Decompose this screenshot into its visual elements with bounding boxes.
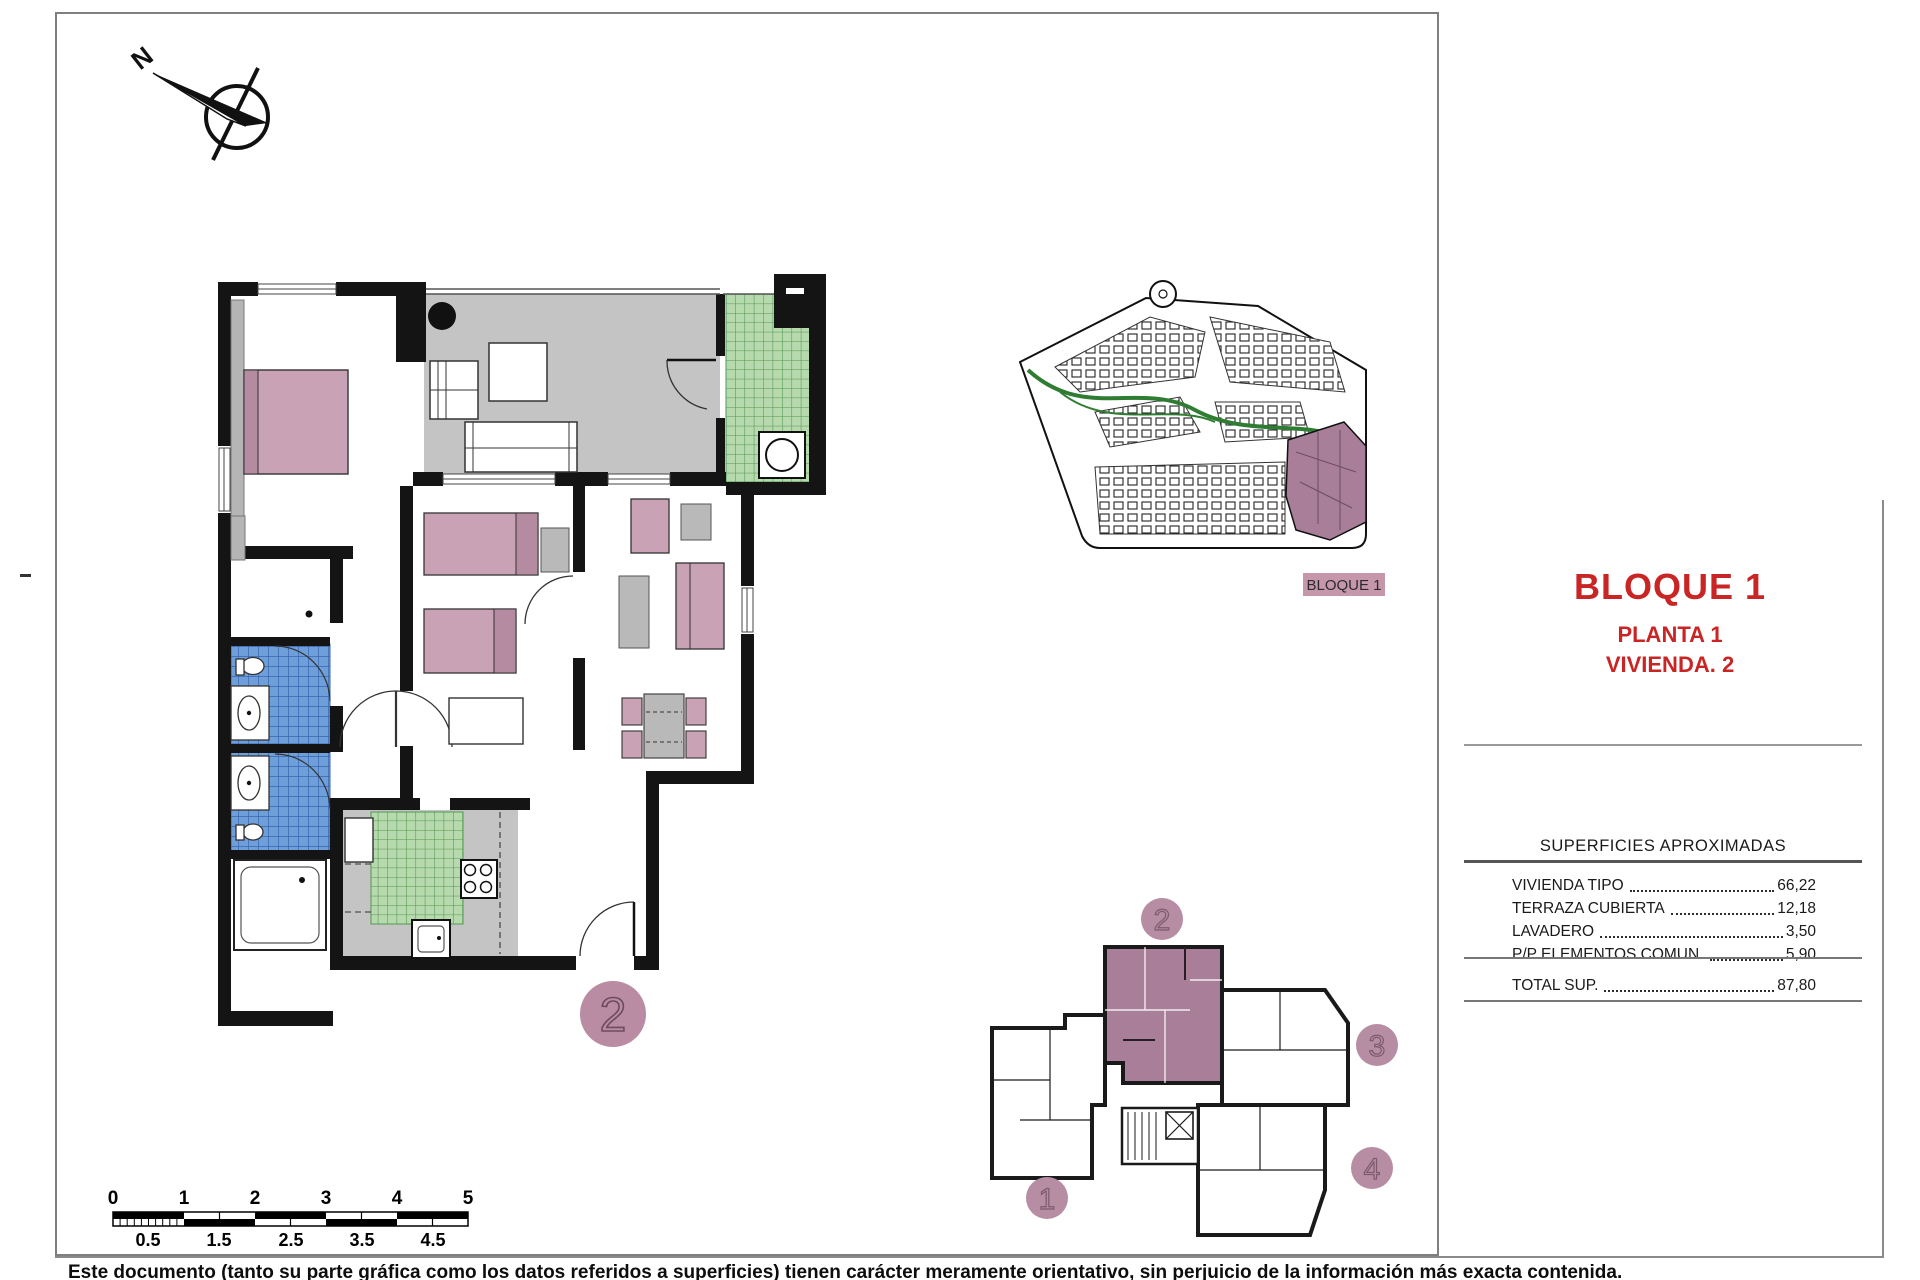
washing-machine-drum xyxy=(766,439,798,471)
unit-badge-number: 2 xyxy=(600,989,627,1042)
block-title: BLOQUE 1 xyxy=(1470,566,1870,608)
salon-glazing xyxy=(426,289,774,294)
surfaces-mid-rule xyxy=(1464,957,1862,959)
row-value: 5,90 xyxy=(1786,946,1816,964)
leader-dots xyxy=(1630,890,1775,892)
keyplan-unit2-highlight xyxy=(1105,947,1222,1083)
total-value: 87,80 xyxy=(1777,977,1816,995)
site-roundabout xyxy=(1150,281,1176,307)
title-panel-right-border xyxy=(1882,500,1884,1258)
living-furniture xyxy=(619,499,724,649)
kitchen-floor xyxy=(371,812,463,924)
dining-set xyxy=(622,694,706,758)
footer-rule xyxy=(55,1256,1884,1258)
footer-disclaimer: Este documento (tanto su parte gráfica c… xyxy=(68,1262,1868,1280)
site-highlight-bloque1 xyxy=(1286,422,1366,540)
panel-divider xyxy=(1464,744,1862,746)
keyplan-number-4: 4 xyxy=(1364,1153,1381,1186)
bathtub xyxy=(234,860,326,950)
margin-tick xyxy=(20,574,31,577)
scale-minor-4: 4.5 xyxy=(420,1230,445,1250)
table-row: VIVIENDA TIPO 66,22 xyxy=(1512,872,1816,895)
compass-needle-light xyxy=(153,73,246,126)
hall-doors xyxy=(340,691,452,747)
column xyxy=(428,302,456,330)
scale-bar-segments xyxy=(113,1212,468,1226)
title-block: BLOQUE 1 PLANTA 1 VIVIENDA. 2 xyxy=(1470,566,1870,678)
apartment-floor-plan: 2 xyxy=(218,266,826,1048)
site-plan: BLOQUE 1 xyxy=(1000,272,1400,602)
leader-dots xyxy=(1604,990,1774,992)
table-row: LAVADERO 3,50 xyxy=(1512,918,1816,941)
site-label-text: BLOQUE 1 xyxy=(1306,577,1381,594)
scale-major-2: 2 xyxy=(250,1188,261,1209)
utility-drain xyxy=(306,611,313,618)
keyplan-number-3: 3 xyxy=(1369,1030,1386,1063)
row-value: 12,18 xyxy=(1777,900,1816,918)
scale-minor-0: 0.5 xyxy=(135,1230,160,1250)
surfaces-total: TOTAL SUP. 87,80 xyxy=(1512,972,1816,995)
surfaces-bottom-rule xyxy=(1464,1000,1862,1002)
scale-major-5: 5 xyxy=(463,1188,474,1209)
bedroom2-furniture xyxy=(424,513,569,744)
master-bench xyxy=(231,516,245,560)
scale-minor-1: 1.5 xyxy=(206,1230,231,1250)
keyplan-number-1: 1 xyxy=(1039,1183,1056,1216)
keyplan-number-2: 2 xyxy=(1154,904,1171,937)
north-label: N xyxy=(125,45,158,76)
scale-minor-2: 2.5 xyxy=(278,1230,303,1250)
entry-door-arc xyxy=(580,902,634,956)
row-label: LAVADERO xyxy=(1512,923,1594,941)
key-plan: 1 2 3 4 xyxy=(980,890,1420,1280)
north-compass: N xyxy=(100,45,320,195)
master-wardrobe xyxy=(231,300,244,516)
keyplan-unit3 xyxy=(1222,990,1348,1105)
surfaces-table: VIVIENDA TIPO 66,22 TERRAZA CUBIERTA 12,… xyxy=(1512,872,1816,964)
keyplan-unit1 xyxy=(992,1015,1105,1178)
surfaces-heading-rule xyxy=(1464,860,1862,863)
scale-major-3: 3 xyxy=(321,1188,332,1209)
floor-title: PLANTA 1 xyxy=(1470,622,1870,648)
scale-major-0: 0 xyxy=(108,1188,119,1209)
row-label: P/P ELEMENTOS COMUN. xyxy=(1512,946,1704,964)
total-label: TOTAL SUP. xyxy=(1512,977,1598,995)
leader-dots xyxy=(1600,936,1783,938)
row-value: 3,50 xyxy=(1786,923,1816,941)
plan-sheet: N xyxy=(0,0,1920,1280)
row-value: 66,22 xyxy=(1777,877,1816,895)
scale-major-4: 4 xyxy=(392,1188,403,1209)
scale-minor-3: 3.5 xyxy=(349,1230,374,1250)
table-row: TERRAZA CUBIERTA 12,18 xyxy=(1512,895,1816,918)
surfaces-heading: SUPERFICIES APROXIMADAS xyxy=(1464,837,1862,856)
scale-major-1: 1 xyxy=(179,1188,190,1209)
table-row: P/P ELEMENTOS COMUN. 5,90 xyxy=(1512,941,1816,964)
leader-dots xyxy=(1671,913,1774,915)
scale-bar: 0 1 2 3 4 5 xyxy=(95,1186,485,1250)
row-label: TERRAZA CUBIERTA xyxy=(1512,900,1665,918)
unit-title: VIVIENDA. 2 xyxy=(1470,652,1870,678)
master-bed-headboard xyxy=(244,370,258,474)
row-label: VIVIENDA TIPO xyxy=(1512,877,1624,895)
master-bed xyxy=(244,370,348,474)
leader-dots xyxy=(1710,959,1783,961)
bedroom2-door-arc xyxy=(525,576,573,624)
